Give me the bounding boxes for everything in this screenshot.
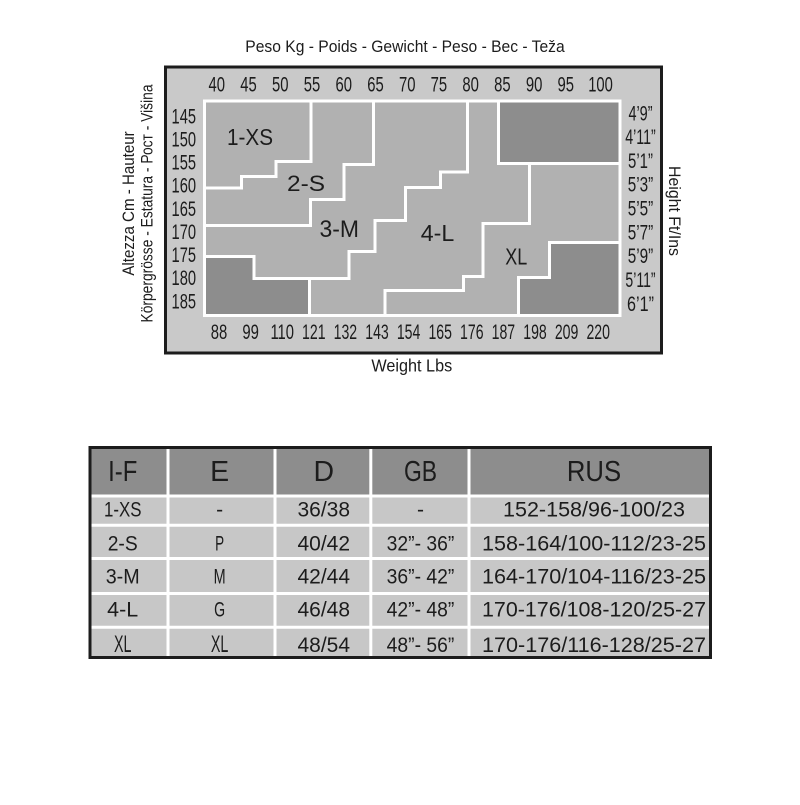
svg-text:90: 90 xyxy=(526,74,543,97)
svg-text:4-L: 4-L xyxy=(107,599,138,622)
svg-text:198: 198 xyxy=(523,321,547,344)
svg-text:88: 88 xyxy=(211,321,228,344)
svg-text:143: 143 xyxy=(365,321,389,344)
svg-text:36/38: 36/38 xyxy=(297,499,350,522)
svg-text:145: 145 xyxy=(172,105,197,128)
svg-text:Altezza Cm - Hauteur: Altezza Cm - Hauteur xyxy=(119,131,138,276)
svg-text:152-158/96-100/23: 152-158/96-100/23 xyxy=(503,499,685,522)
svg-text:Körpergrösse - Estatura - Рост: Körpergrösse - Estatura - Рост - Višina xyxy=(138,84,157,322)
svg-text:5’7”: 5’7” xyxy=(628,221,654,244)
svg-text:185: 185 xyxy=(172,290,197,313)
svg-text:42”- 48”: 42”- 48” xyxy=(387,599,455,622)
svg-text:Height Ft/Ins: Height Ft/Ins xyxy=(665,166,684,256)
svg-text:5’3”: 5’3” xyxy=(628,174,654,197)
svg-text:1-XS: 1-XS xyxy=(227,124,273,150)
svg-text:48/54: 48/54 xyxy=(297,634,350,657)
svg-text:RUS: RUS xyxy=(567,456,621,488)
svg-text:160: 160 xyxy=(172,175,197,198)
svg-text:3-M: 3-M xyxy=(106,566,140,589)
svg-text:M: M xyxy=(214,566,226,589)
svg-text:187: 187 xyxy=(492,321,516,344)
svg-text:5’11”: 5’11” xyxy=(625,269,655,292)
svg-text:209: 209 xyxy=(555,321,579,344)
svg-text:5’1”: 5’1” xyxy=(628,150,653,173)
svg-text:D: D xyxy=(313,456,334,488)
svg-text:5’5”: 5’5” xyxy=(628,198,654,221)
svg-text:85: 85 xyxy=(494,74,511,97)
svg-text:40/42: 40/42 xyxy=(297,533,350,556)
svg-text:1-XS: 1-XS xyxy=(104,499,142,522)
svg-text:110: 110 xyxy=(270,321,294,344)
svg-text:Peso Kg - Poids - Gewicht - Pe: Peso Kg - Poids - Gewicht - Peso - Bec -… xyxy=(245,38,565,56)
svg-text:-: - xyxy=(216,499,223,522)
svg-text:E: E xyxy=(210,456,229,488)
svg-text:170-176/116-128/25-27: 170-176/116-128/25-27 xyxy=(482,634,706,657)
svg-text:6’1”: 6’1” xyxy=(627,293,654,316)
svg-text:G: G xyxy=(214,599,225,622)
svg-text:48”- 56”: 48”- 56” xyxy=(387,634,455,657)
svg-text:50: 50 xyxy=(272,74,289,97)
svg-text:150: 150 xyxy=(172,128,197,151)
svg-text:GB: GB xyxy=(404,456,437,488)
svg-text:75: 75 xyxy=(431,74,448,97)
svg-text:Weight Lbs: Weight Lbs xyxy=(371,355,452,375)
svg-text:95: 95 xyxy=(558,74,575,97)
svg-text:2-S: 2-S xyxy=(287,171,325,196)
svg-text:4-L: 4-L xyxy=(421,220,455,246)
svg-text:158-164/100-112/23-25: 158-164/100-112/23-25 xyxy=(482,533,706,556)
svg-text:165: 165 xyxy=(172,198,197,221)
svg-text:60: 60 xyxy=(335,74,352,97)
svg-text:45: 45 xyxy=(240,74,257,97)
svg-text:175: 175 xyxy=(172,244,197,267)
svg-text:165: 165 xyxy=(428,321,452,344)
svg-text:XL: XL xyxy=(114,631,132,658)
svg-text:70: 70 xyxy=(399,74,416,97)
svg-text:170-176/108-120/25-27: 170-176/108-120/25-27 xyxy=(482,599,706,622)
svg-text:220: 220 xyxy=(586,321,610,344)
svg-text:XL: XL xyxy=(211,631,229,658)
svg-text:3-M: 3-M xyxy=(320,216,360,243)
svg-text:2-S: 2-S xyxy=(108,533,138,556)
svg-text:170: 170 xyxy=(172,221,197,244)
svg-text:I-F: I-F xyxy=(108,456,137,488)
svg-text:55: 55 xyxy=(304,74,321,97)
svg-text:-: - xyxy=(417,499,424,522)
svg-text:155: 155 xyxy=(172,152,197,175)
svg-text:4’9”: 4’9” xyxy=(628,102,652,125)
svg-text:99: 99 xyxy=(242,321,259,344)
svg-text:154: 154 xyxy=(397,321,421,344)
svg-text:176: 176 xyxy=(460,321,484,344)
svg-text:32”- 36”: 32”- 36” xyxy=(387,533,455,556)
svg-text:36”- 42”: 36”- 42” xyxy=(387,566,455,589)
svg-text:P: P xyxy=(215,533,224,556)
svg-text:5’9”: 5’9” xyxy=(628,245,654,268)
svg-text:46/48: 46/48 xyxy=(297,599,350,622)
svg-text:121: 121 xyxy=(302,321,326,344)
svg-text:100: 100 xyxy=(588,74,613,97)
svg-text:164-170/104-116/23-25: 164-170/104-116/23-25 xyxy=(482,566,706,589)
svg-text:180: 180 xyxy=(172,267,197,290)
svg-text:4’11”: 4’11” xyxy=(625,126,656,149)
svg-text:XL: XL xyxy=(505,244,527,270)
svg-text:42/44: 42/44 xyxy=(297,566,350,589)
svg-text:65: 65 xyxy=(367,74,384,97)
svg-text:132: 132 xyxy=(334,321,358,344)
svg-text:40: 40 xyxy=(209,74,226,97)
svg-text:80: 80 xyxy=(462,74,479,97)
